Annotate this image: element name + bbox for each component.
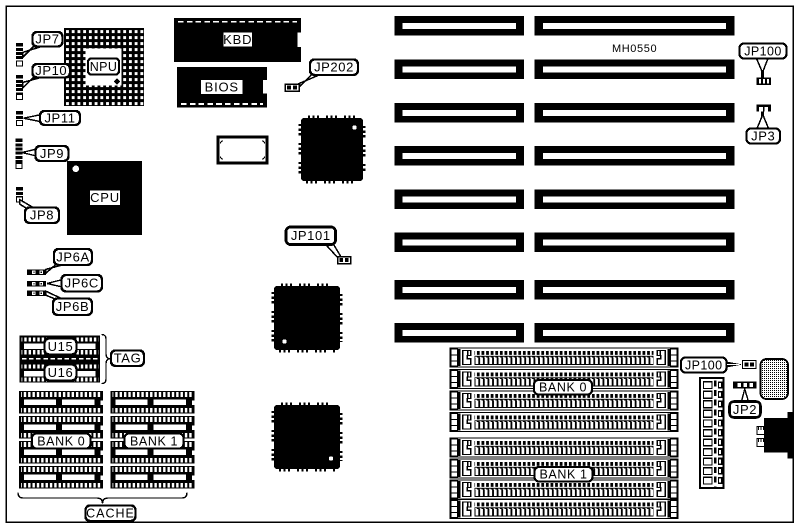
svg-text:U15: U15 bbox=[48, 339, 74, 354]
svg-text:BANK 1: BANK 1 bbox=[130, 434, 178, 448]
svg-text:JP9: JP9 bbox=[40, 146, 64, 161]
svg-text:JP11: JP11 bbox=[44, 110, 75, 125]
svg-text:JP3: JP3 bbox=[751, 128, 775, 143]
svg-text:JP2: JP2 bbox=[733, 402, 757, 417]
svg-text:JP7: JP7 bbox=[35, 32, 59, 47]
svg-text:JP100: JP100 bbox=[685, 358, 722, 372]
svg-text:TAG: TAG bbox=[114, 351, 142, 366]
svg-text:U16: U16 bbox=[48, 365, 74, 380]
svg-text:BANK 1: BANK 1 bbox=[539, 468, 587, 482]
svg-text:JP101: JP101 bbox=[291, 228, 331, 243]
svg-text:JP202: JP202 bbox=[314, 60, 354, 75]
svg-text:CACHE: CACHE bbox=[86, 507, 135, 521]
svg-text:JP8: JP8 bbox=[30, 208, 54, 223]
svg-text:CPU: CPU bbox=[90, 190, 120, 205]
svg-text:BANK 0: BANK 0 bbox=[37, 434, 85, 448]
svg-text:KBD: KBD bbox=[223, 32, 252, 47]
svg-text:JP10: JP10 bbox=[35, 63, 67, 78]
svg-text:JP6B: JP6B bbox=[56, 299, 89, 314]
svg-text:BANK 0: BANK 0 bbox=[539, 381, 587, 395]
svg-text:JP6A: JP6A bbox=[56, 249, 89, 264]
svg-text:JP6C: JP6C bbox=[65, 276, 99, 291]
svg-text:MH0550: MH0550 bbox=[612, 43, 657, 55]
svg-text:BIOS: BIOS bbox=[205, 79, 239, 94]
svg-text:NPU: NPU bbox=[90, 60, 118, 74]
svg-text:JP100: JP100 bbox=[744, 44, 781, 58]
